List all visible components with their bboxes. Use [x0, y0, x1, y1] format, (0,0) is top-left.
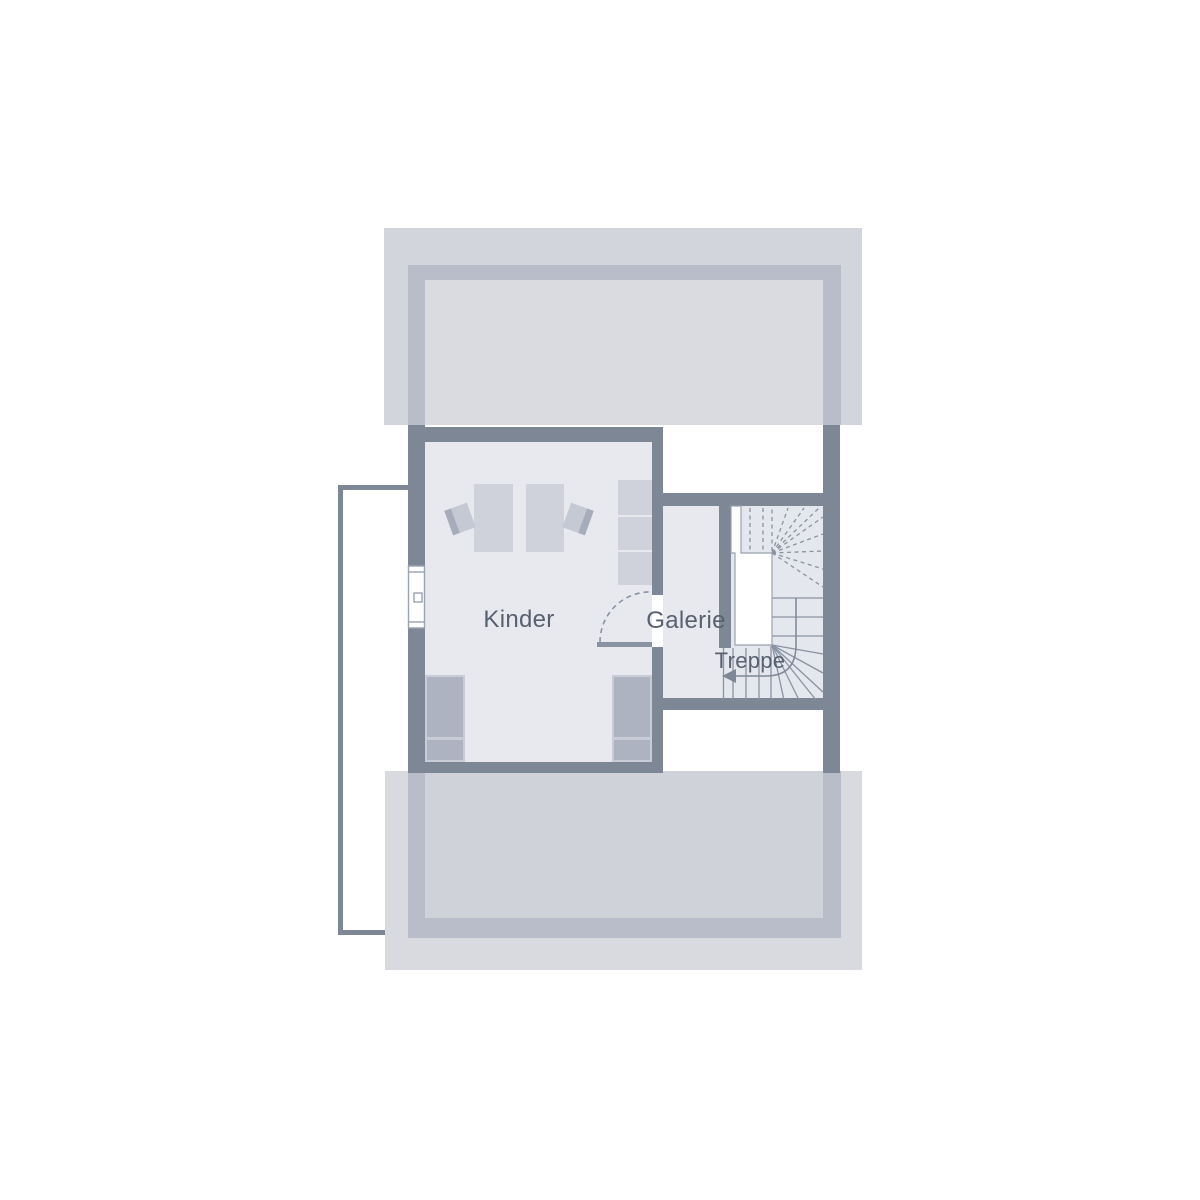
wall-divider-mid	[652, 505, 663, 595]
bed-foot	[427, 740, 463, 760]
desk-left	[474, 484, 513, 552]
wall-under-roof-top-left	[408, 265, 425, 425]
roof-overhang-top-inner	[425, 280, 823, 425]
wall-under-roof-bottom-right	[823, 771, 841, 938]
wall-under-roof-bottom	[408, 918, 841, 938]
wardrobe-shelf	[618, 552, 652, 585]
wall-under-roof-top	[408, 265, 840, 280]
roof-overhang-bottom-inner	[425, 771, 823, 918]
wardrobe-shelf	[618, 517, 652, 550]
wall-kinder-bottom	[408, 762, 663, 773]
floor-plan: Kinder Galerie Treppe	[0, 0, 1200, 1200]
bed-left	[425, 675, 465, 762]
wall-right	[823, 425, 840, 773]
wardrobe-shelf	[618, 480, 652, 515]
room-label-galerie: Galerie	[626, 608, 746, 634]
bed-foot	[614, 740, 650, 760]
room-label-treppe: Treppe	[690, 649, 810, 673]
wall-under-roof-top-right	[823, 265, 841, 425]
wall-kinder-left	[408, 425, 425, 773]
bed-right	[612, 675, 652, 762]
wall-under-roof-bottom-left	[408, 771, 425, 938]
wall-divider-upper	[652, 427, 663, 505]
bed-mattress	[427, 677, 463, 737]
wardrobe	[618, 480, 652, 587]
room-label-kinder: Kinder	[459, 607, 579, 633]
wall-kinder-top	[408, 427, 663, 442]
wall-galerie-top	[663, 493, 840, 506]
wall-stair-bottom	[663, 698, 823, 710]
door-panel	[597, 642, 652, 647]
desk-right	[526, 484, 564, 552]
wall-divider-lower	[652, 647, 663, 773]
bed-mattress	[614, 677, 650, 737]
